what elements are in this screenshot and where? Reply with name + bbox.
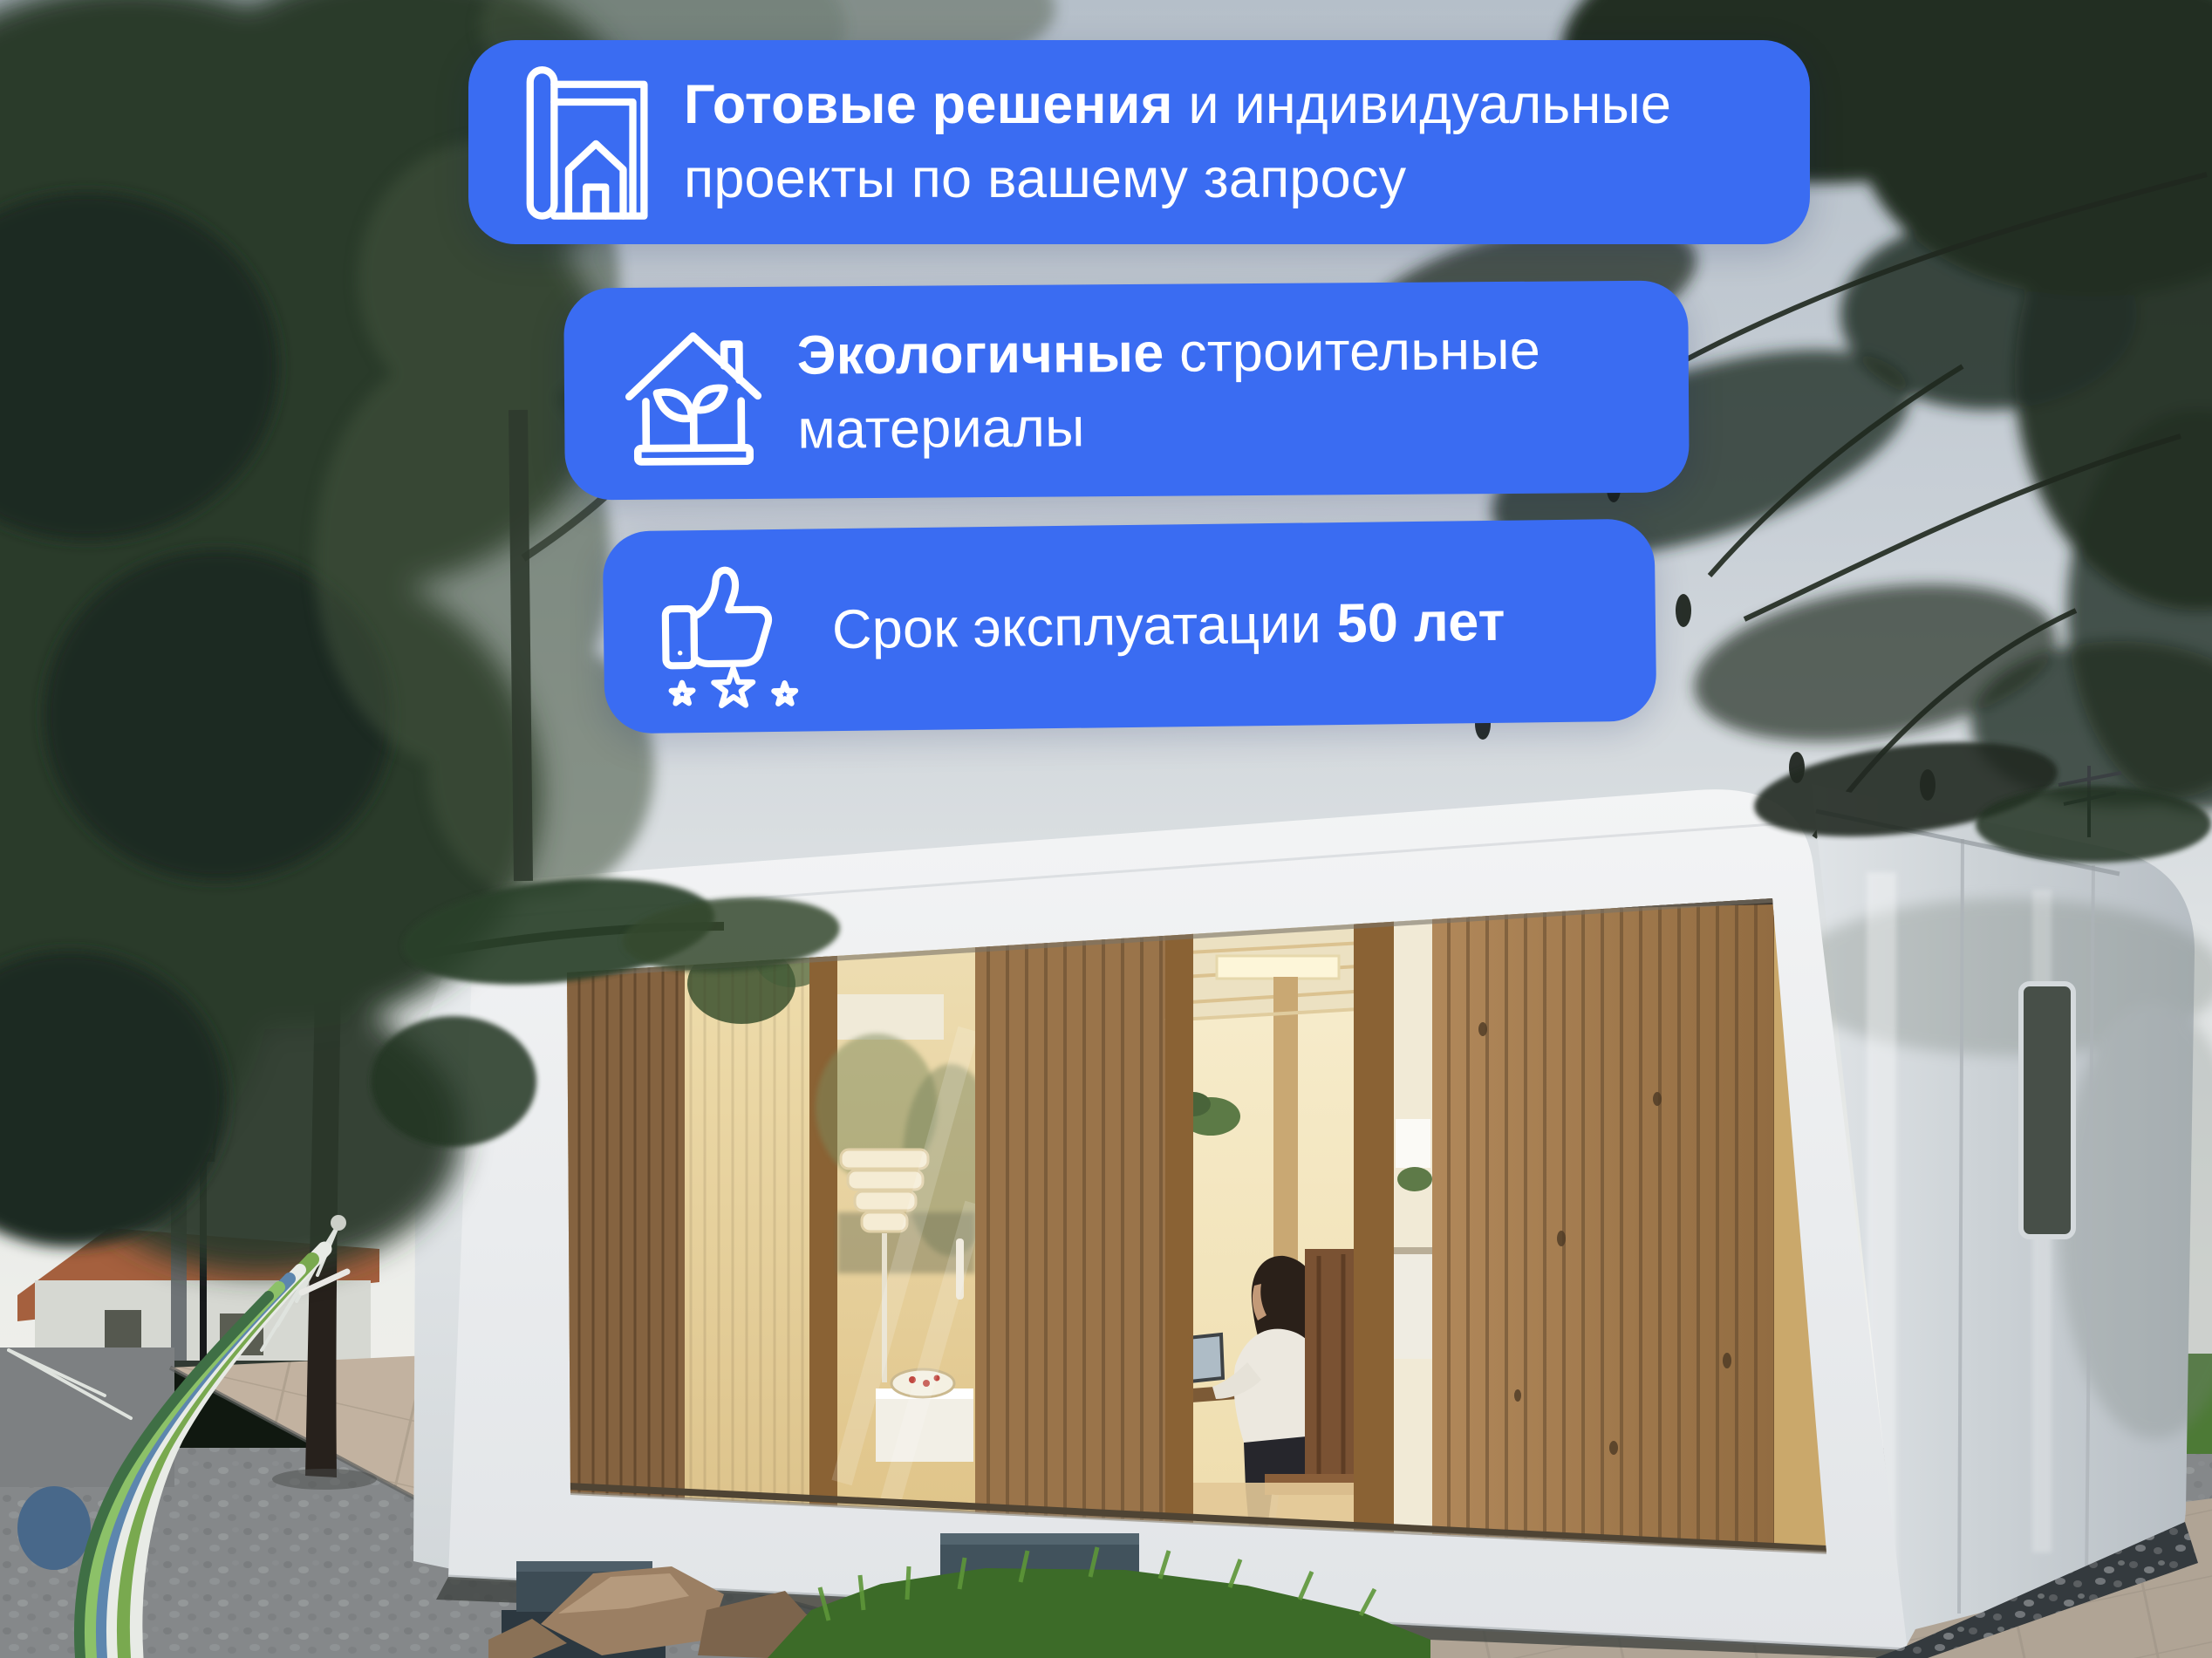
badge-line-1: Экологичные строительные <box>796 313 1540 392</box>
photo-scene <box>0 0 2212 1658</box>
badge-line-2: материалы <box>797 387 1541 467</box>
right-wall-window <box>2021 984 2073 1237</box>
badge-line-1: Готовые решения и индивидуальные <box>684 68 1671 142</box>
feature-badge-eco: Экологичные строительные материалы <box>563 281 1690 501</box>
kitchen-glass <box>1394 881 1432 1561</box>
feature-badge-lifespan: Срок эксплуатации 50 лет <box>603 519 1657 734</box>
thumbs-up-stars-icon <box>655 546 809 717</box>
window-lamp <box>816 881 999 1552</box>
badge-text: Экологичные строительные материалы <box>796 313 1540 467</box>
badge-line-2: проекты по вашему запросу <box>684 142 1671 216</box>
badge-text: Готовые решения и индивидуальные проекты… <box>684 68 1671 216</box>
banner-canvas: Готовые решения и индивидуальные проекты… <box>0 0 2212 1658</box>
feature-badge-projects: Готовые решения и индивидуальные проекты… <box>468 40 1810 244</box>
badge-line-1: Срок эксплуатации 50 лет <box>832 584 1506 666</box>
blueprint-icon <box>522 62 653 222</box>
eco-house-icon <box>611 313 774 473</box>
badge-text: Срок эксплуатации 50 лет <box>832 584 1506 666</box>
blue-pot <box>17 1486 91 1570</box>
